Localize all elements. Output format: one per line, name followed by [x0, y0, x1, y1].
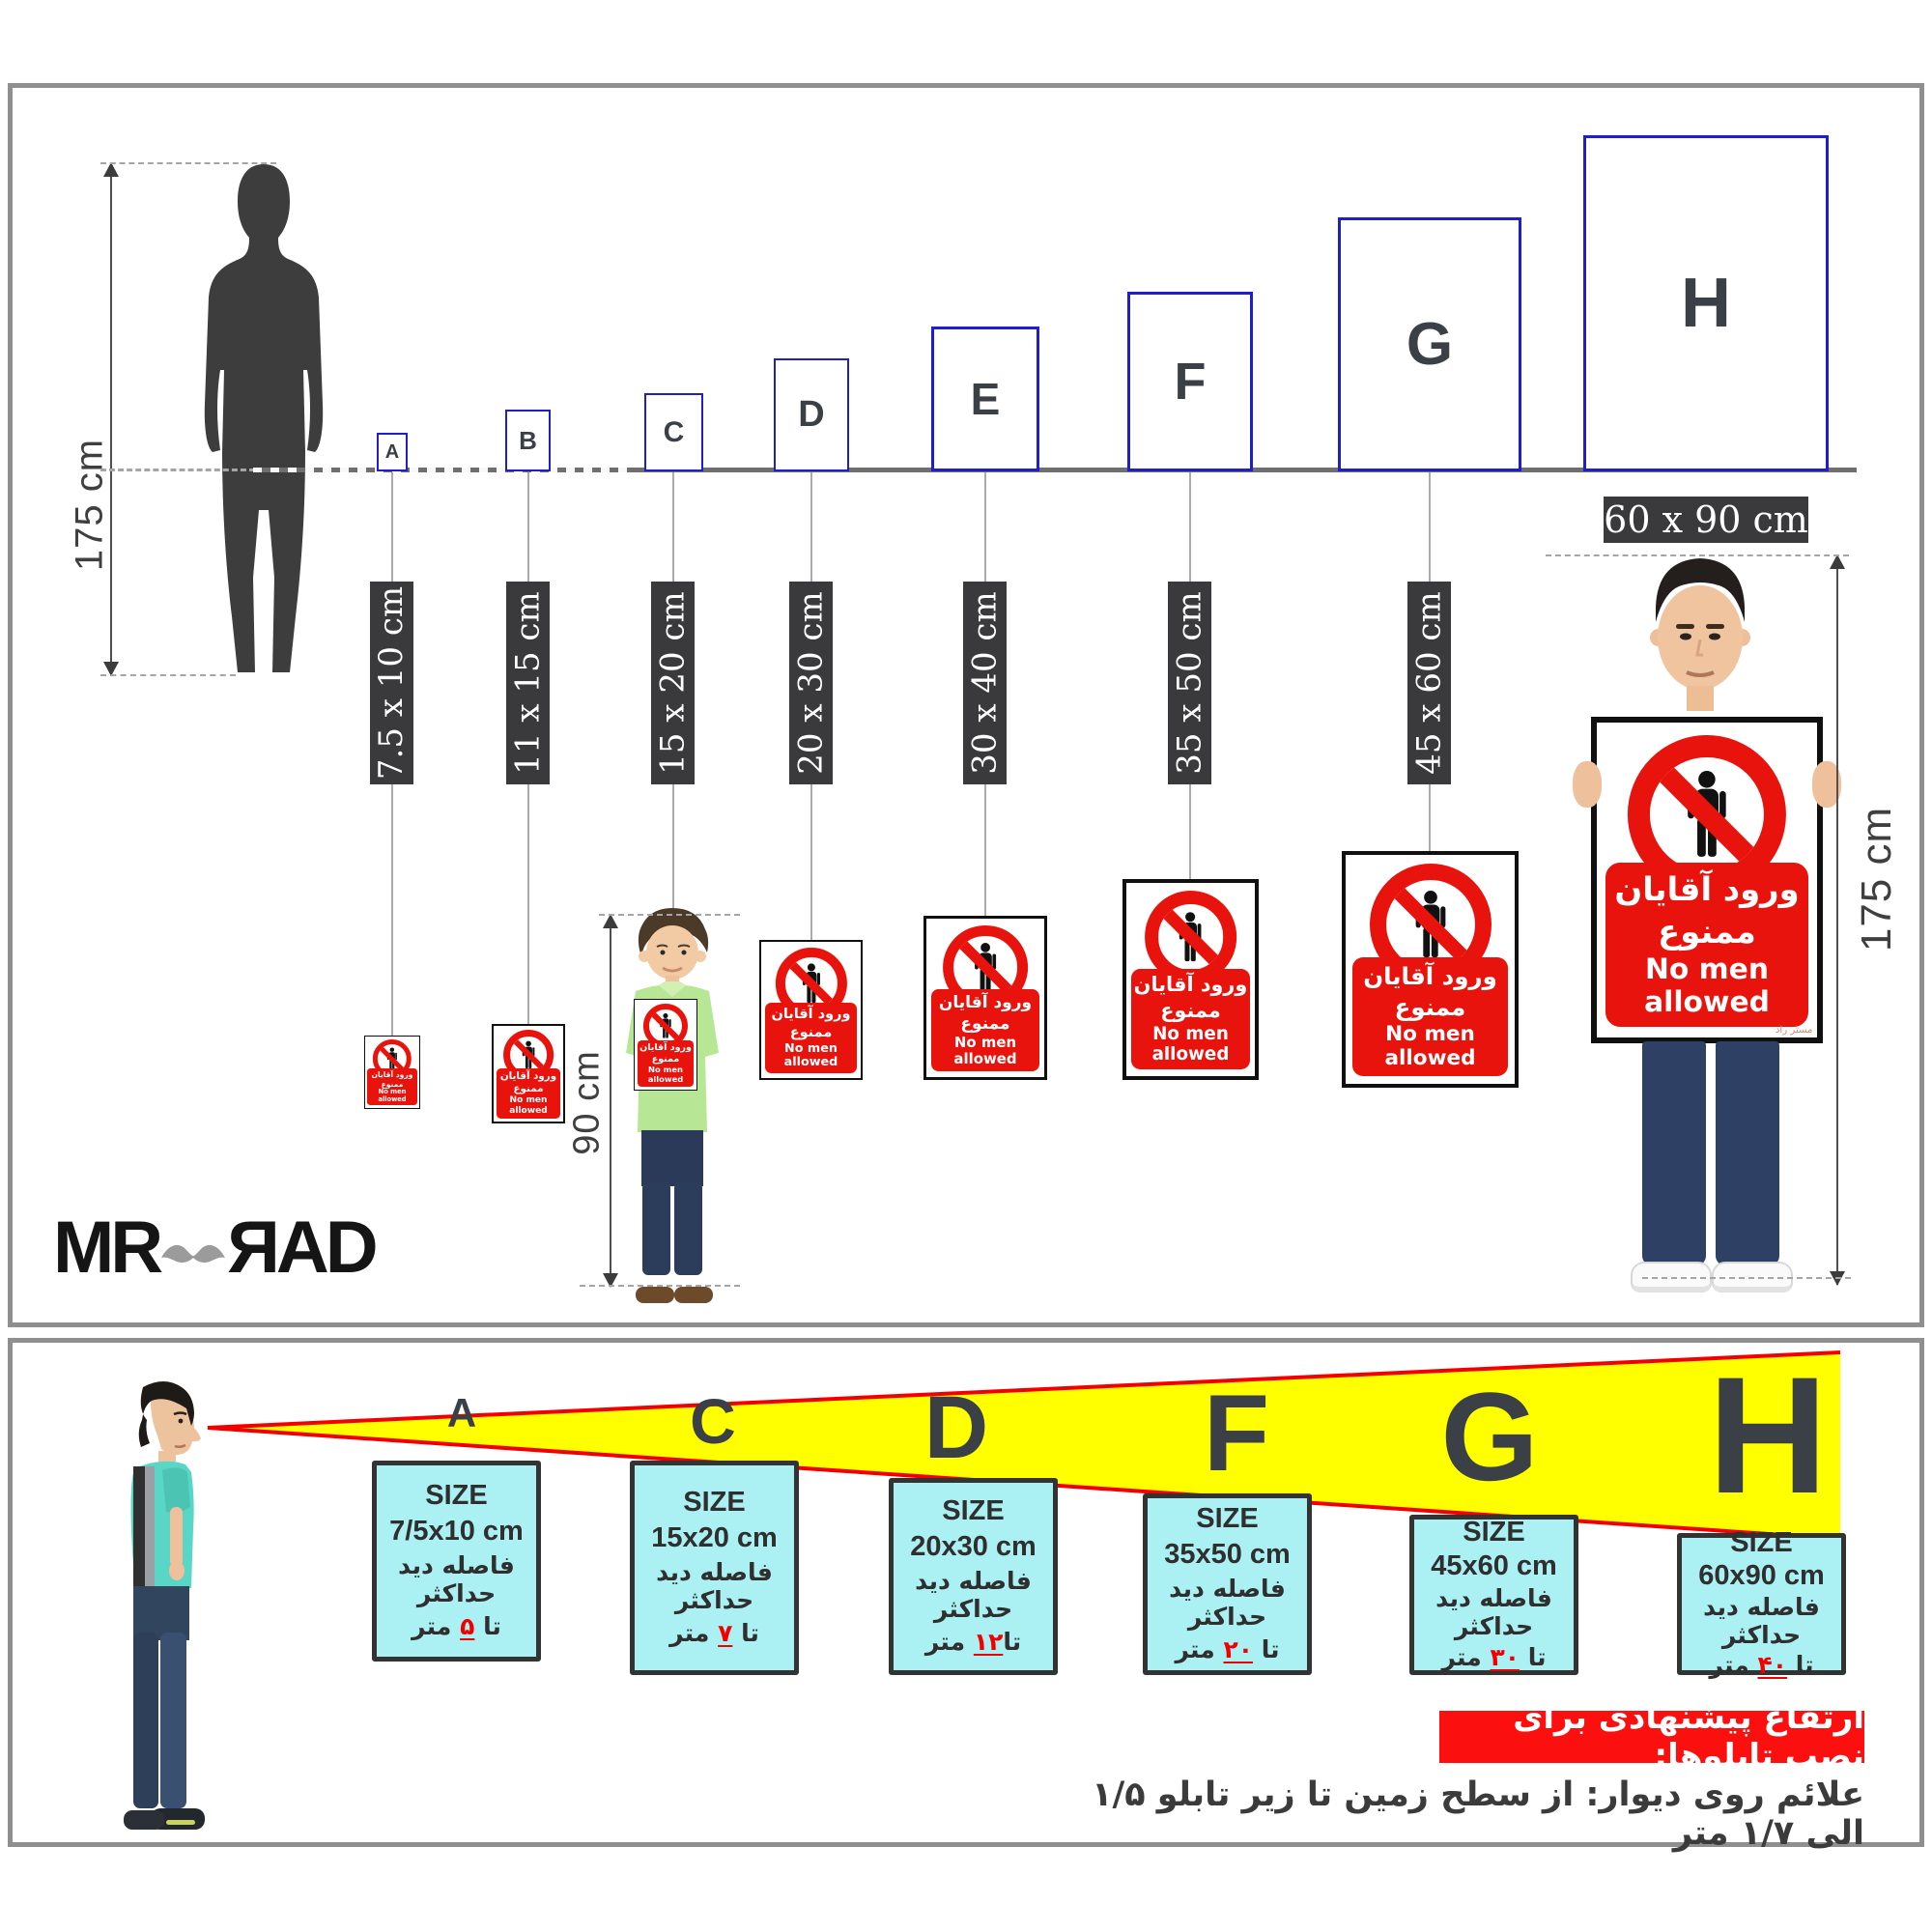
baseline-dash-left [100, 469, 255, 471]
distance-board-h: SIZE 60x90 cm فاصله دید حداکثر تا ۴۰ متر [1677, 1533, 1846, 1675]
brand-logo: MR ЯAD [53, 1211, 375, 1285]
man-hand-left [1573, 761, 1602, 808]
distance-board-g: SIZE 45x60 cm فاصله دید حداکثر تا ۳۰ متر [1409, 1515, 1578, 1675]
hang-line [527, 472, 529, 582]
no-men-sign-b: ورود آقایان ممنوعNo men allowed [492, 1024, 565, 1123]
distance-board-c: SIZE 15x20 cm فاصله دید حداکثر تا ۷ متر [630, 1461, 799, 1675]
size-strip-e: 30 x 40 cm [963, 582, 1007, 784]
mustache-icon [161, 1240, 225, 1269]
size-strip-d: 20 x 30 cm [789, 582, 833, 784]
silhouette-height-line [110, 164, 112, 676]
size-box-h: H [1583, 135, 1829, 471]
feet-dash-line [100, 674, 236, 676]
child-head-dash [599, 914, 740, 916]
hang-line [984, 784, 986, 916]
logo-mr: MR [53, 1211, 159, 1285]
distance-board-a: SIZE 7/5x10 cm فاصله دید حداکثر تا ۵ متر [372, 1461, 541, 1662]
hang-line [984, 472, 986, 582]
hang-line [672, 784, 674, 909]
hang-line [672, 472, 674, 582]
big-size-text: 60 x 90 cm [1604, 498, 1808, 541]
cone-letter-a: A [447, 1393, 476, 1434]
man-height-label: 175 cm [1853, 802, 1901, 956]
child-photo [612, 906, 732, 1310]
size-strip-c: 15 x 20 cm [651, 582, 695, 784]
cone-letter-g: G [1440, 1374, 1538, 1499]
size-box-b: B [505, 410, 551, 471]
size-box-d: D [774, 358, 849, 471]
no-men-sign-h-held: ورود آقایان ممنوعNo men allowed مستر راد [1591, 717, 1823, 1043]
child-height-line [610, 918, 611, 1287]
box-letter: B [519, 426, 537, 456]
cone-letter-c: C [690, 1389, 736, 1453]
box-letter: G [1406, 310, 1453, 379]
box-letter: H [1681, 264, 1731, 343]
hang-line [1429, 472, 1431, 582]
size-strip-a: 7.5 x 10 cm [370, 582, 413, 784]
no-men-sign-g: ورود آقایان ممنوعNo men allowed [1342, 851, 1519, 1088]
man-head-dash [1546, 554, 1849, 556]
hang-line [810, 472, 812, 582]
note-body-text: علائم روی دیوار: از سطح زمین تا زیر تابل… [1063, 1776, 1864, 1853]
viewer-man-photo [108, 1379, 219, 1841]
no-men-sign-child: ورود آقایان ممنوعNo men allowed [634, 999, 697, 1091]
child-feet-dash [580, 1285, 740, 1287]
no-men-sign-d: ورود آقایان ممنوعNo men allowed [759, 940, 863, 1080]
size-box-g: G [1338, 217, 1521, 471]
hang-line [1189, 784, 1191, 879]
hang-line [1429, 784, 1431, 851]
note-title-text: ارتفاع پیشنهادی برای نصب تابلوها: [1439, 1698, 1864, 1776]
silhouette-height-label: 175 cm [69, 428, 112, 582]
box-letter: F [1175, 352, 1207, 412]
box-letter: E [971, 373, 1001, 425]
man-leg-right [1716, 1041, 1779, 1265]
baseline-dash-overlay [253, 468, 636, 472]
man-head [1642, 553, 1758, 723]
size-guide-infographic: 175 cm A B C D E F G H 7.5 x 10 cm 11 x … [0, 0, 1932, 1932]
note-title-band: ارتفاع پیشنهادی برای نصب تابلوها: [1439, 1711, 1864, 1763]
man-feet-dash [1642, 1277, 1851, 1279]
man-height-line [1836, 558, 1838, 1285]
no-men-sign-a: ورود آقایان ممنوعNo men allowed [364, 1036, 420, 1109]
size-box-e: E [931, 327, 1039, 471]
hang-line [527, 784, 529, 1024]
hang-line [810, 784, 812, 940]
box-letter: D [798, 394, 824, 436]
cone-letter-h: H [1708, 1352, 1828, 1519]
size-box-f: F [1127, 292, 1253, 471]
size-box-a: A [377, 433, 408, 471]
hang-line [391, 472, 393, 582]
distance-board-d: SIZE 20x30 cm فاصله دید حداکثر تا۱۲ متر [889, 1478, 1058, 1675]
child-height-label: 90 cm [567, 1026, 609, 1180]
hang-line [391, 784, 393, 1036]
logo-rad: ЯAD [227, 1211, 374, 1285]
no-men-sign-e: ورود آقایان ممنوعNo men allowed [923, 916, 1047, 1080]
arrow-up-icon [603, 914, 618, 928]
arrow-up-icon [1830, 554, 1845, 569]
size-box-c: C [644, 393, 703, 471]
size-strip-f: 35 x 50 cm [1168, 582, 1211, 784]
big-size-label: 60 x 90 cm [1604, 497, 1808, 543]
hang-line [1189, 472, 1191, 582]
no-men-sign-f: ورود آقایان ممنوعNo men allowed [1122, 879, 1259, 1080]
size-strip-b: 11 x 15 cm [506, 582, 550, 784]
head-dash-line [100, 162, 276, 164]
box-letter: A [385, 441, 399, 464]
box-letter: C [664, 416, 685, 449]
human-silhouette [191, 162, 336, 676]
sign-footer-text: مستر راد [1776, 1025, 1813, 1036]
man-leg-left [1642, 1041, 1706, 1265]
size-strip-g: 45 x 60 cm [1407, 582, 1451, 784]
cone-letter-d: D [924, 1383, 988, 1472]
arrow-up-icon [103, 162, 119, 177]
distance-board-f: SIZE 35x50 cm فاصله دید حداکثر تا ۲۰ متر [1143, 1493, 1312, 1675]
cone-letter-f: F [1204, 1379, 1269, 1488]
